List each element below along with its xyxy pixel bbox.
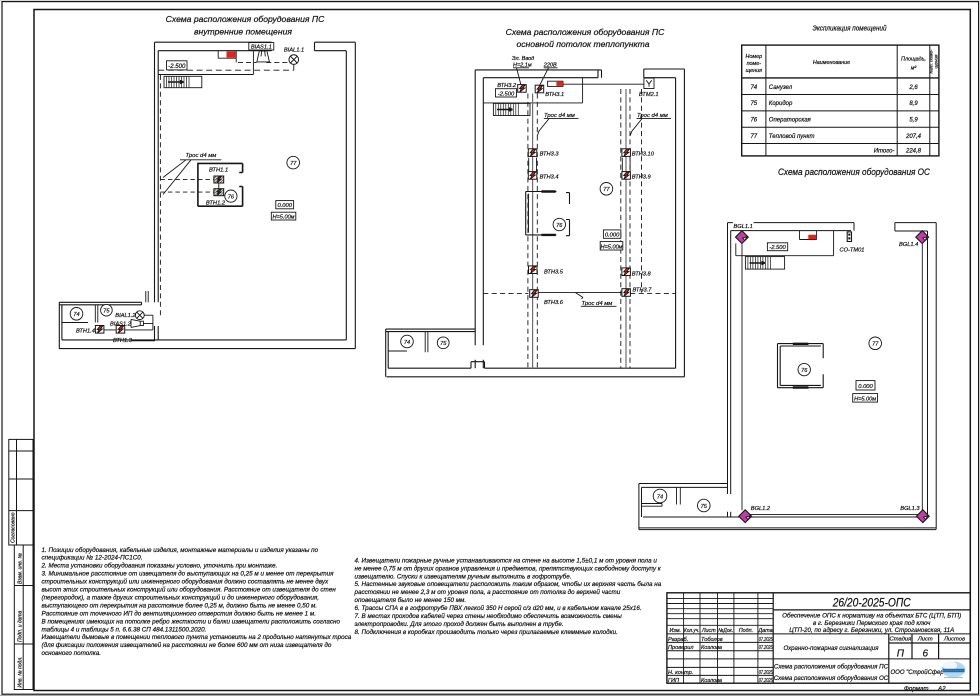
svg-text:Дата: Дата <box>757 628 772 634</box>
svg-text:в г. Березники Пермского края: в г. Березники Пермского края под ключ <box>813 620 931 627</box>
svg-text:07.2025: 07.2025 <box>759 637 773 643</box>
svg-text:BGL1.4: BGL1.4 <box>899 242 918 248</box>
svg-text:4. Извещатели пожарные ручные: 4. Извещатели пожарные ручные устанавлив… <box>355 557 658 564</box>
svg-text:07.2025: 07.2025 <box>759 678 773 684</box>
svg-text:№Док.: №Док. <box>718 628 733 634</box>
svg-text:77: 77 <box>872 342 879 348</box>
svg-text:5,9: 5,9 <box>909 118 918 124</box>
svg-text:ВТН1.2: ВТН1.2 <box>206 200 226 206</box>
svg-text:6: 6 <box>923 648 929 659</box>
svg-text:-2.500: -2.500 <box>498 91 515 97</box>
svg-text:электропроводки. Для этого про: электропроводки. Для этого проход должен… <box>355 620 564 628</box>
svg-text:(перегородок), а также других: (перегородок), а также других строительн… <box>42 594 320 602</box>
svg-text:поме-: поме- <box>747 61 762 67</box>
svg-text:Трос d4 мм: Трос d4 мм <box>637 113 668 119</box>
svg-text:ВТН3.10: ВТН3.10 <box>632 151 655 157</box>
svg-text:Листов: Листов <box>943 637 965 643</box>
svg-text:Коридор: Коридор <box>769 101 793 107</box>
svg-text:Площадь,: Площадь, <box>901 57 926 63</box>
svg-text:75: 75 <box>701 504 708 510</box>
svg-text:Санузел: Санузел <box>769 85 793 91</box>
svg-text:74: 74 <box>750 85 757 91</box>
svg-text:Эл. Ввод: Эл. Ввод <box>512 56 535 62</box>
svg-text:Лист: Лист <box>917 637 933 643</box>
svg-text:П: П <box>897 648 905 659</box>
svg-text:2,6: 2,6 <box>908 85 918 91</box>
svg-text:77: 77 <box>750 134 757 140</box>
svg-text:расстоянии не менее 2,3 м от у: расстоянии не менее 2,3 м от уровня пола… <box>354 588 621 596</box>
svg-text:Кол.уч.: Кол.уч. <box>684 628 700 634</box>
svg-text:строительных конструкций или: строительных конструкций или инженерного… <box>42 578 329 586</box>
svg-text:74: 74 <box>404 340 410 346</box>
svg-text:извещателю. Спуски к извещател: извещателю. Спуски к извещателям ручным … <box>355 572 572 580</box>
svg-text:спецификации № 12-2024-ПС1С0.: спецификации № 12-2024-ПС1С0. <box>42 555 143 562</box>
svg-text:Операторская: Операторская <box>769 118 812 124</box>
svg-text:Обеспечение ОПС к нормативу на: Обеспечение ОПС к нормативу на объектах … <box>782 613 961 620</box>
svg-text:BIAL1.1: BIAL1.1 <box>284 48 304 54</box>
svg-text:76: 76 <box>556 223 563 229</box>
svg-text:75: 75 <box>103 309 110 315</box>
svg-text:207,4: 207,4 <box>905 134 922 140</box>
svg-text:7. В местах проходов кабелей ч: 7. В местах проходов кабелей через стены… <box>355 612 623 620</box>
svg-text:77: 77 <box>603 187 610 193</box>
svg-text:основного потолка.: основного потолка. <box>42 650 101 657</box>
svg-text:0.000: 0.000 <box>605 233 620 239</box>
svg-text:224,8: 224,8 <box>905 149 922 155</box>
svg-text:BGL1.1: BGL1.1 <box>734 224 753 230</box>
svg-text:щения: щения <box>746 68 763 74</box>
svg-text:ВТН3.9: ВТН3.9 <box>632 174 652 180</box>
svg-text:BGL1.3: BGL1.3 <box>900 506 920 512</box>
svg-text:высот этих строительных констр: высот этих строительных конструкций или … <box>42 586 337 594</box>
svg-text:Экспликация помещений: Экспликация помещений <box>813 24 887 33</box>
svg-text:оповещателя было не менее 150: оповещателя было не менее 150 мм. <box>355 596 467 604</box>
svg-text:основной потолок теплопункта: основной потолок теплопункта <box>516 39 649 49</box>
svg-text:выступающего от перекрытия на: выступающего от перекрытия на расстояние… <box>42 601 318 609</box>
svg-text:ВТН3.2: ВТН3.2 <box>497 83 517 89</box>
svg-text:76: 76 <box>228 195 235 201</box>
svg-text:0.000: 0.000 <box>277 203 292 209</box>
svg-text:Н=5.00м: Н=5.00м <box>600 244 622 250</box>
svg-text:75: 75 <box>750 101 757 107</box>
svg-text:не менее 0,75 м от других орга: не менее 0,75 м от других органов управл… <box>355 564 662 572</box>
svg-text:внутренние помещения: внутренние помещения <box>194 27 292 37</box>
svg-text:Схема расположения оборудовани: Схема расположения оборудования ПС <box>166 14 325 24</box>
svg-text:5. Настенные звуковые оповеща: 5. Настенные звуковые оповещатели распол… <box>355 580 662 588</box>
svg-text:BIAS1.1: BIAS1.1 <box>251 45 272 51</box>
svg-text:ООО "СтройСфера": ООО "СтройСфера" <box>891 669 950 676</box>
svg-text:Лист: Лист <box>701 628 716 634</box>
svg-text:Разраб.: Разраб. <box>668 637 688 643</box>
svg-text:ВТН3.4: ВТН3.4 <box>540 174 559 180</box>
svg-text:таблицы 4 и таблицы 5 п. 6.6.3: таблицы 4 и таблицы 5 п. 6.6.38 СП 484.1… <box>42 625 207 633</box>
svg-text:74: 74 <box>73 312 79 318</box>
svg-text:Изм.: Изм. <box>670 628 682 634</box>
svg-text:77: 77 <box>290 161 297 167</box>
svg-text:75: 75 <box>440 341 447 347</box>
svg-text:26/20-2025-ОПС: 26/20-2025-ОПС <box>832 598 912 610</box>
svg-text:Инв. № подл.: Инв. № подл. <box>17 656 23 687</box>
svg-text:Козлова: Козлова <box>701 678 722 684</box>
svg-text:CO-TM01: CO-TM01 <box>840 247 865 253</box>
svg-text:1. Позиции оборудования, кабел: 1. Позиции оборудования, кабельные издел… <box>42 546 319 554</box>
svg-text:-2.500: -2.500 <box>168 64 186 70</box>
svg-text:Схема расположения оборудовани: Схема расположения оборудования ОС <box>774 675 889 682</box>
svg-text:BGL1.2: BGL1.2 <box>751 506 771 512</box>
svg-text:ВТН3.7: ВТН3.7 <box>633 287 653 293</box>
svg-text:ВТН3.1: ВТН3.1 <box>545 92 564 98</box>
svg-text:ВТН1.1: ВТН1.1 <box>209 167 228 173</box>
svg-text:Трос d4 мм: Трос d4 мм <box>186 153 217 159</box>
svg-text:-2.500: -2.500 <box>769 245 786 251</box>
svg-text:BIAL1.2: BIAL1.2 <box>115 313 136 319</box>
svg-text:А2: А2 <box>937 686 946 693</box>
svg-text:Извещатели дымовые в помещении: Извещатели дымовые в помещении теплового… <box>42 633 352 641</box>
svg-text:07.2025: 07.2025 <box>759 645 773 651</box>
svg-text:Охранно-пожарная сигнализация: Охранно-пожарная сигнализация <box>784 645 879 652</box>
svg-text:м²: м² <box>911 66 917 72</box>
svg-text:ЦТП-20, по адресу г. Березники: ЦТП-20, по адресу г. Березники, ул. Стро… <box>789 627 954 634</box>
svg-text:ВТН3.6: ВТН3.6 <box>544 300 564 306</box>
svg-text:Согласовано: Согласовано <box>11 512 17 543</box>
svg-text:Козлова: Козлова <box>701 645 722 651</box>
svg-text:ВТН1.3: ВТН1.3 <box>113 338 133 344</box>
svg-text:ГИП: ГИП <box>668 678 680 684</box>
svg-text:74: 74 <box>657 494 663 500</box>
svg-text:Итого-: Итого- <box>874 149 895 155</box>
svg-text:Н. контр.: Н. контр. <box>668 670 693 676</box>
svg-text:Тепловой пункт: Тепловой пункт <box>769 133 815 140</box>
svg-text:ВТН3.3: ВТН3.3 <box>540 151 560 157</box>
svg-text:6. Трассы СПА в в гофротрубе: 6. Трассы СПА в в гофротрубе ПВХ легкой … <box>355 604 642 612</box>
svg-text:В помещениях имеющих на потолк: В помещениях имеющих на потолке ребро же… <box>42 617 341 625</box>
svg-text:8,9: 8,9 <box>909 101 918 107</box>
svg-text:Стадия: Стадия <box>890 637 912 643</box>
svg-text:щения: щения <box>933 54 938 69</box>
svg-text:76: 76 <box>801 368 808 374</box>
svg-text:Формат: Формат <box>904 686 929 693</box>
svg-text:ВТН3.5: ВТН3.5 <box>544 270 564 276</box>
svg-text:(для фиксации положения извеща: (для фиксации положения извещателей на р… <box>42 641 332 649</box>
svg-text:8. Подключения в коробках прои: 8. Подключения в коробках производить то… <box>355 628 618 636</box>
svg-text:Взам. инв. №: Взам. инв. № <box>17 552 23 584</box>
svg-text:0.000: 0.000 <box>858 384 873 390</box>
svg-text:Схема расположения оборудовани: Схема расположения оборудования ПС <box>774 664 889 671</box>
svg-text:Н=5.00м: Н=5.00м <box>854 396 876 402</box>
svg-text:Подп. и дата: Подп. и дата <box>17 610 23 642</box>
svg-text:Проверил: Проверил <box>668 645 694 651</box>
svg-text:ВТН3.8: ВТН3.8 <box>632 271 652 277</box>
svg-text:76: 76 <box>750 118 757 124</box>
svg-text:Трос d4 мм: Трос d4 мм <box>544 113 575 119</box>
svg-text:Номер: Номер <box>746 54 763 60</box>
svg-text:Наименование: Наименование <box>813 60 850 66</box>
svg-text:2. Места установки оборудовани: 2. Места установки оборудования показаны… <box>41 562 278 570</box>
svg-text:3. Минимальное расстояние от и: 3. Минимальное расстояние от извещателя … <box>42 570 335 578</box>
svg-text:Схема расположения оборудовани: Схема расположения оборудования ПС <box>506 27 665 37</box>
svg-text:Расстояние от точечного ИП до: Расстояние от точечного ИП до вентиляцио… <box>42 609 317 617</box>
svg-text:ВТН1.4: ВТН1.4 <box>76 328 95 334</box>
svg-text:Подп.: Подп. <box>739 628 753 634</box>
svg-text:Н=5.00м: Н=5.00м <box>272 214 294 220</box>
svg-text:07.2025: 07.2025 <box>759 670 773 676</box>
svg-text:Тоболов: Тоболов <box>701 637 723 643</box>
svg-text:Схема расположения оборудовани: Схема расположения оборудования ОС <box>778 167 930 177</box>
